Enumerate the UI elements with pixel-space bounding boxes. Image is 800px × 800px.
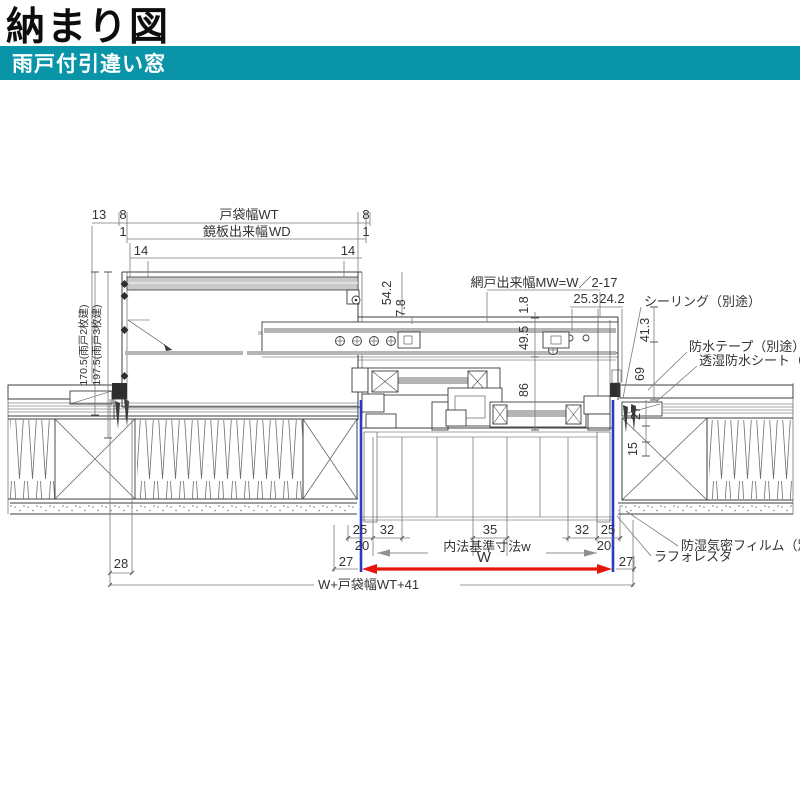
dim-32-right: 32	[575, 522, 589, 537]
left-jamb-hatch	[364, 432, 377, 522]
dim-7-8: 7.8	[394, 299, 408, 316]
dim-w: W	[477, 549, 492, 566]
label-todana-width: 戸袋幅WT	[219, 207, 278, 222]
note-breathable-sheet: 透湿防水シート（別途）	[699, 353, 800, 368]
screw-icon	[623, 405, 628, 433]
dim-32-left: 32	[380, 522, 394, 537]
dim-20-right: 20	[597, 538, 611, 553]
dim-25-right: 25	[601, 522, 615, 537]
sliding-sashes	[362, 368, 610, 430]
dim-27-jamb: 27	[629, 406, 643, 420]
w-arrow-left-icon	[377, 549, 390, 556]
dim-25-3: 25.3	[573, 291, 598, 306]
label-kagamiita-wd: WD	[269, 224, 291, 239]
dim-25-left: 25	[353, 522, 367, 537]
dim-27-left: 27	[339, 554, 353, 569]
sealing-joint	[612, 370, 621, 383]
dims-left: 170.5(雨戸2枚建) 197.5(雨戸3枚建)	[77, 272, 112, 438]
dim-86: 86	[517, 383, 531, 397]
right-insulation	[709, 420, 793, 499]
dim-amado-3: 197.5(雨戸3枚建)	[90, 304, 103, 385]
right-cladding	[620, 385, 793, 398]
dim-8-left: 8	[119, 207, 126, 222]
dims-top: 13 8 戸袋幅WT 8 1 鏡板出来幅 WD 1 14 14	[92, 207, 370, 383]
outer-glass	[398, 377, 468, 384]
label-kagamiita: 鏡板出来幅	[203, 224, 268, 239]
note-laforesta: ラフォレスタ	[654, 549, 732, 564]
left-inner-board	[10, 503, 357, 514]
dim-13: 13	[92, 207, 106, 222]
right-inner-board	[618, 503, 793, 514]
note-sealing: シーリング（別途）	[644, 294, 761, 309]
dim-14-right: 14	[341, 243, 355, 258]
dim-amado-2: 170.5(雨戸2枚建)	[77, 304, 90, 385]
left-insulation-a	[10, 420, 55, 499]
w-arrowhead-right-icon	[597, 564, 612, 574]
dim-49-5: 49.5	[517, 326, 531, 350]
page-title: 納まり図	[6, 6, 170, 49]
dim-41-3: 41.3	[638, 318, 652, 342]
dim-69: 69	[633, 367, 647, 381]
dim-20-left: 20	[355, 538, 369, 553]
dim-w-total: W+戸袋幅WT+41	[318, 577, 419, 592]
dim-28: 28	[114, 556, 128, 571]
w-arrowhead-left-icon	[362, 564, 377, 574]
dim-1-right: 1	[362, 224, 369, 239]
label-amido-width: 網戸出来幅MW=W／2-17	[471, 275, 618, 290]
dim-54-2: 54.2	[380, 281, 394, 305]
dim-27-right: 27	[619, 554, 633, 569]
drawing-canvas: 納まり図 雨戸付引違い窓	[0, 0, 800, 800]
page-header: 納まり図 雨戸付引違い窓	[0, 6, 800, 80]
left-wall-section	[8, 383, 358, 514]
dim-8-right: 8	[362, 207, 369, 222]
inner-glass	[507, 410, 566, 417]
left-insulation-b	[137, 420, 303, 499]
sill-opening	[362, 428, 612, 522]
dim-35: 35	[483, 522, 497, 537]
dim-24-2: 24.2	[599, 291, 624, 306]
right-jamb-hatch	[597, 432, 610, 522]
page-subtitle: 雨戸付引違い窓	[12, 52, 166, 76]
dim-14-left: 14	[134, 243, 148, 258]
dim-15: 15	[626, 442, 640, 456]
dim-1-8: 1.8	[517, 296, 531, 313]
w-arrow-right-icon	[584, 549, 597, 556]
right-wall-section	[610, 370, 793, 514]
note-waterproof-tape: 防水テープ（別途）	[689, 339, 800, 354]
dim-1-left: 1	[119, 224, 126, 239]
